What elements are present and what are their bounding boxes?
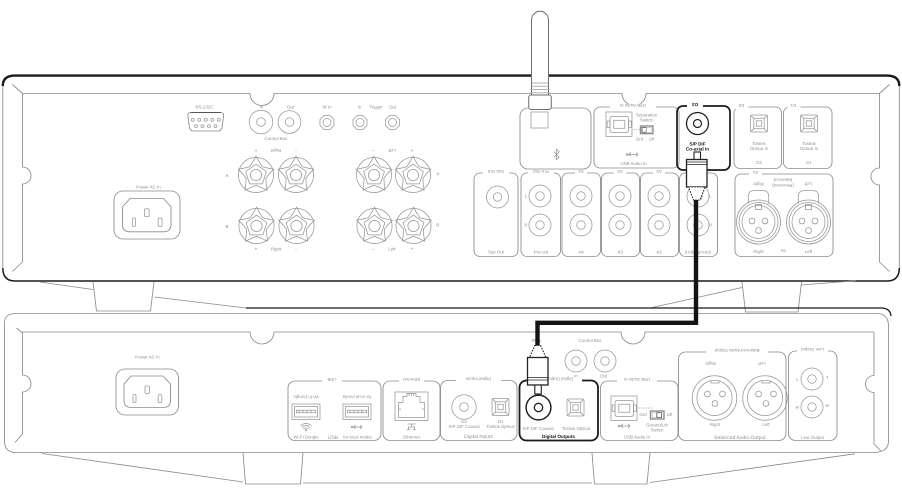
svg-text:+: + xyxy=(411,247,414,253)
svg-text:Grd: Grd xyxy=(636,137,644,142)
svg-text:+: + xyxy=(254,147,257,153)
svg-text:Digital Outputs: Digital Outputs xyxy=(542,434,575,439)
svg-text:Balanced: Balanced xyxy=(773,177,792,182)
svg-text:Control Bus: Control Bus xyxy=(579,338,603,343)
svg-text:Right: Right xyxy=(753,182,764,187)
svg-text:Digital Inputs: Digital Inputs xyxy=(464,434,493,440)
svg-text:Line Output: Line Output xyxy=(800,347,823,352)
svg-text:Right: Right xyxy=(753,249,764,254)
svg-text:L: L xyxy=(709,194,712,199)
svg-text:A: A xyxy=(226,173,229,178)
svg-text:Ethernet: Ethernet xyxy=(402,377,419,382)
svg-text:Out: Out xyxy=(287,105,295,110)
svg-text:Lift: Lift xyxy=(667,412,674,417)
svg-text:R: R xyxy=(709,223,712,228)
svg-text:Balanced Audio Output: Balanced Audio Output xyxy=(714,435,766,441)
svg-text:Power AC In: Power AC In xyxy=(135,355,160,360)
svg-text:Wi-Fi Dongle: Wi-Fi Dongle xyxy=(293,435,319,440)
svg-text:A1: A1 xyxy=(781,248,787,253)
svg-text:Left: Left xyxy=(804,182,812,187)
svg-text:D2: D2 xyxy=(756,160,762,165)
svg-text:Switch: Switch xyxy=(651,428,664,433)
svg-text:A4: A4 xyxy=(578,169,584,174)
svg-text:USB Audio In: USB Audio In xyxy=(619,103,646,108)
svg-text:Right: Right xyxy=(271,247,282,252)
svg-text:+: + xyxy=(410,147,413,153)
svg-text:Optical In: Optical In xyxy=(800,146,819,151)
svg-text:Pre-Out: Pre-Out xyxy=(533,169,549,174)
svg-text:Sub Out: Sub Out xyxy=(487,169,504,174)
svg-text:IR In: IR In xyxy=(322,105,332,110)
svg-text:Left: Left xyxy=(805,249,813,254)
svg-text:Left: Left xyxy=(758,361,766,366)
svg-text:S/P DIF Coaxial: S/P DIF Coaxial xyxy=(522,426,553,431)
svg-text:Left: Left xyxy=(762,422,770,427)
svg-text:–: – xyxy=(371,147,374,153)
svg-text:Right: Right xyxy=(270,148,281,153)
svg-text:USB: USB xyxy=(328,435,339,441)
svg-text:D1: D1 xyxy=(806,160,812,165)
svg-text:D1: D1 xyxy=(790,103,796,108)
svg-text:Lift: Lift xyxy=(649,137,656,142)
svg-text:Switch: Switch xyxy=(640,118,653,123)
svg-text:Grd: Grd xyxy=(639,412,647,417)
svg-text:Ethernet: Ethernet xyxy=(403,435,420,440)
svg-text:A1: A1 xyxy=(752,170,758,175)
svg-text:USB: USB xyxy=(327,377,336,382)
svg-text:B: B xyxy=(436,223,439,228)
svg-text:USB Audio In: USB Audio In xyxy=(623,377,650,382)
svg-text:Pre-out: Pre-out xyxy=(534,250,549,255)
svg-text:Balanced Audio Output: Balanced Audio Output xyxy=(714,348,760,353)
svg-text:Digital Inputs: Digital Inputs xyxy=(465,377,491,382)
svg-text:Wi-Fi Dongle: Wi-Fi Dongle xyxy=(293,395,319,400)
svg-text:+: + xyxy=(255,247,258,253)
svg-text:D3: D3 xyxy=(692,102,698,107)
svg-text:Toslink Optical: Toslink Optical xyxy=(562,426,590,431)
svg-text:D2: D2 xyxy=(738,103,744,108)
svg-text:–: – xyxy=(295,247,298,253)
svg-text:S/P DIF Coaxial: S/P DIF Coaxial xyxy=(448,424,479,429)
svg-text:R: R xyxy=(825,403,828,408)
svg-text:RS-232C: RS-232C xyxy=(195,105,213,110)
svg-text:A3: A3 xyxy=(617,250,623,255)
svg-text:Co-axial In: Co-axial In xyxy=(686,147,709,152)
svg-text:Optical In: Optical In xyxy=(750,146,769,151)
svg-text:R: R xyxy=(524,223,527,228)
svg-text:Left: Left xyxy=(388,148,396,153)
svg-text:USB Audio In: USB Audio In xyxy=(620,161,647,166)
svg-text:–: – xyxy=(294,147,297,153)
svg-text:Sub Out: Sub Out xyxy=(488,250,505,255)
svg-text:Trigger: Trigger xyxy=(369,105,383,110)
svg-text:A: A xyxy=(436,172,439,177)
svg-text:for local media: for local media xyxy=(343,435,372,440)
svg-text:Power AC In: Power AC In xyxy=(136,185,161,190)
svg-text:Out: Out xyxy=(600,374,608,379)
svg-text:In: In xyxy=(358,105,362,110)
svg-text:L: L xyxy=(825,375,828,380)
svg-text:A4: A4 xyxy=(578,250,584,255)
svg-text:A3: A3 xyxy=(617,169,623,174)
svg-text:In: In xyxy=(260,105,264,110)
svg-text:–: – xyxy=(372,247,375,253)
svg-text:A2: A2 xyxy=(656,250,662,255)
svg-text:Control Bus: Control Bus xyxy=(265,136,289,141)
svg-text:Right: Right xyxy=(710,422,721,427)
svg-text:R: R xyxy=(796,405,799,410)
svg-text:Left: Left xyxy=(388,247,396,252)
svg-text:Toslink Optical: Toslink Optical xyxy=(486,424,514,429)
svg-text:B: B xyxy=(226,224,229,229)
svg-text:L: L xyxy=(525,194,528,199)
svg-text:(Reversed): (Reversed) xyxy=(772,183,794,188)
svg-text:Right: Right xyxy=(705,361,716,366)
svg-text:A2: A2 xyxy=(656,169,662,174)
svg-text:(Unbalanced): (Unbalanced) xyxy=(685,250,712,255)
svg-text:L: L xyxy=(796,377,799,382)
svg-text:for local media: for local media xyxy=(342,395,371,400)
svg-text:Out: Out xyxy=(389,105,397,110)
svg-text:Line Output: Line Output xyxy=(801,435,824,440)
svg-text:USB Audio In: USB Audio In xyxy=(624,435,651,440)
